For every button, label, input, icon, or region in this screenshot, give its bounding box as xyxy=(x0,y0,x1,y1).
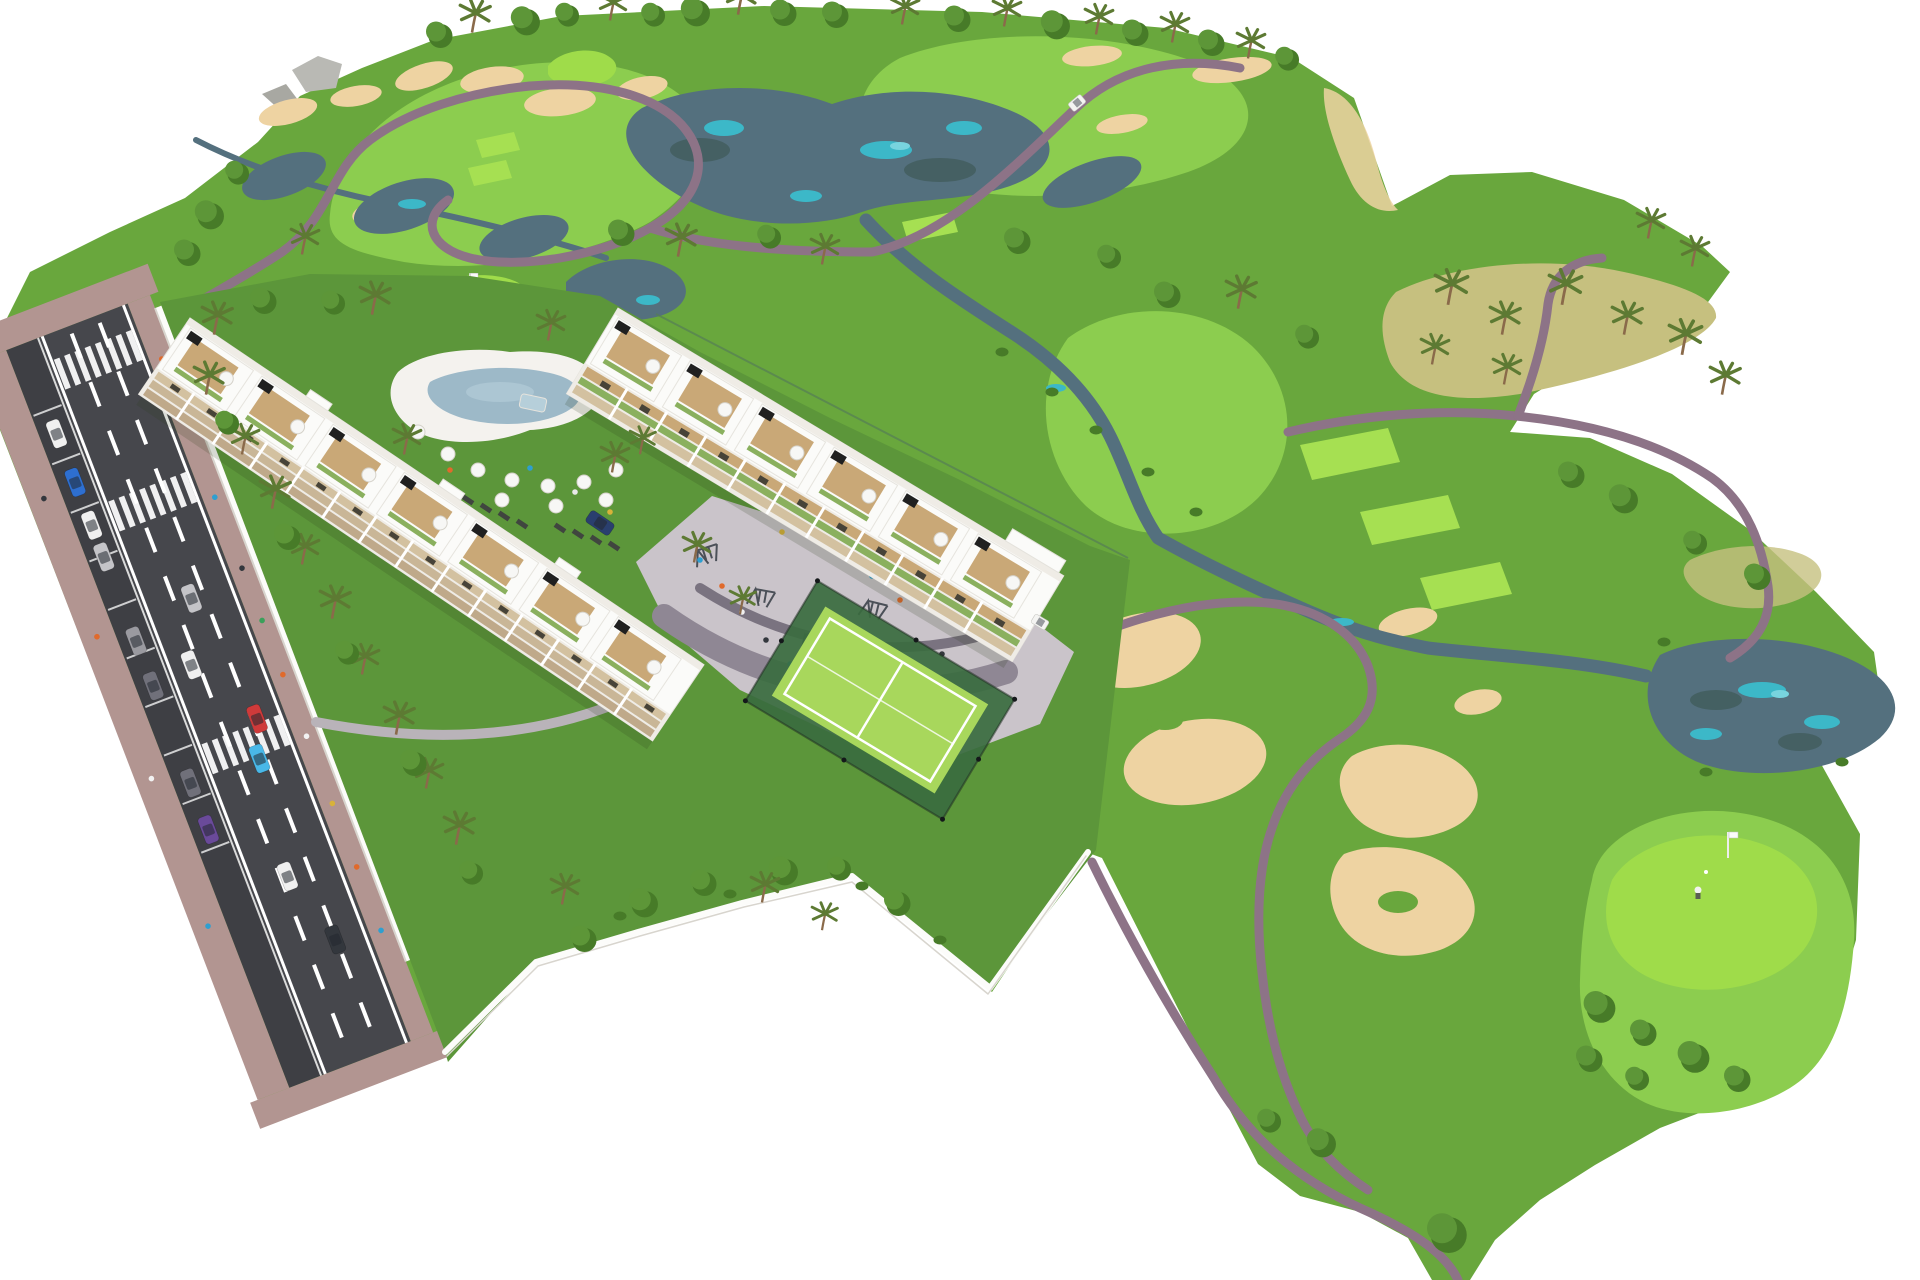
bush-icon xyxy=(996,348,1009,357)
bush-icon xyxy=(856,882,869,891)
palm-icon xyxy=(812,903,837,931)
bush-icon xyxy=(614,912,627,921)
bush-icon xyxy=(1658,638,1671,647)
bush-icon xyxy=(1836,758,1849,767)
bush-icon xyxy=(1700,768,1713,777)
render-stage xyxy=(0,0,1920,1280)
palm-icon xyxy=(460,0,490,32)
bush-icon xyxy=(1046,388,1059,397)
bush-icon xyxy=(724,890,737,899)
bush-icon xyxy=(1190,508,1203,517)
bush-icon xyxy=(1142,468,1155,477)
big-green xyxy=(1606,835,1817,989)
palm-icon xyxy=(1710,362,1740,395)
bush-icon xyxy=(1090,426,1103,435)
golf-ball xyxy=(1704,870,1708,874)
bush-icon xyxy=(934,936,947,945)
aerial-render xyxy=(0,0,1920,1280)
